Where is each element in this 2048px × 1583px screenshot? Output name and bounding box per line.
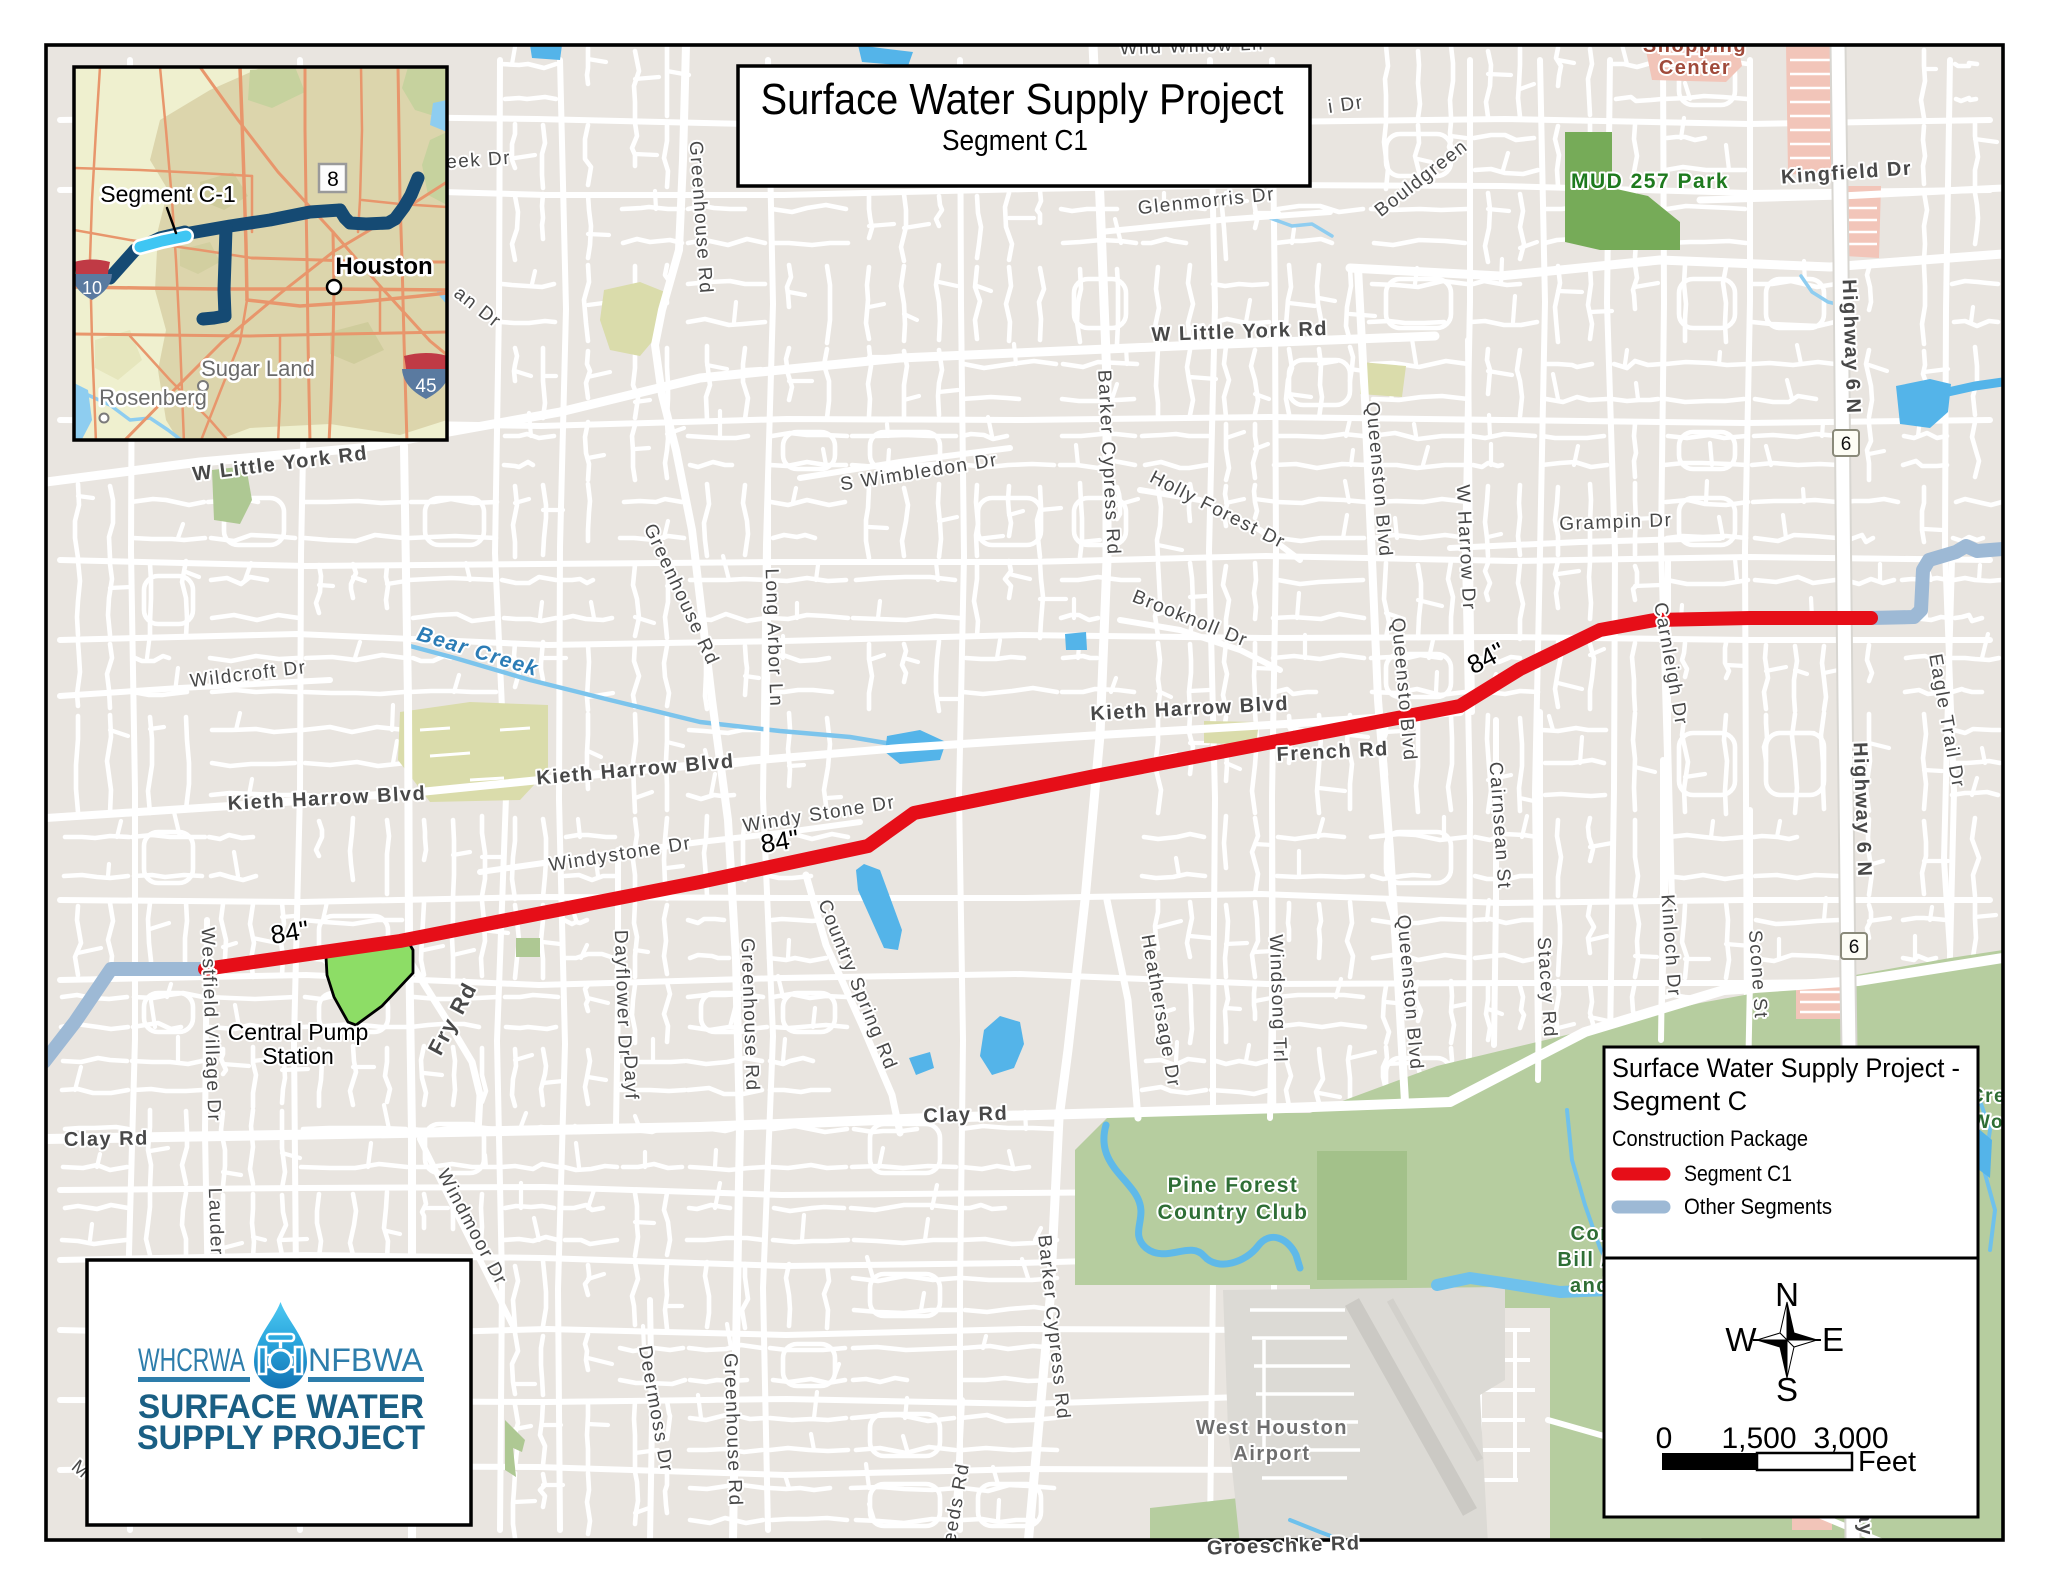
svg-text:Center: Center bbox=[1659, 57, 1731, 79]
svg-text:45: 45 bbox=[415, 376, 436, 397]
svg-text:6: 6 bbox=[1841, 434, 1852, 455]
svg-text:Bill /: Bill / bbox=[1557, 1249, 1608, 1271]
svg-text:Construction Package: Construction Package bbox=[1612, 1126, 1808, 1151]
svg-text:0: 0 bbox=[1656, 1422, 1673, 1455]
svg-text:Feet: Feet bbox=[1858, 1446, 1916, 1478]
svg-text:Houston: Houston bbox=[335, 253, 432, 280]
svg-text:Station: Station bbox=[262, 1043, 334, 1069]
svg-text:Pine Forest: Pine Forest bbox=[1168, 1174, 1299, 1197]
svg-text:84": 84" bbox=[268, 914, 310, 950]
svg-text:Other Segments: Other Segments bbox=[1684, 1194, 1832, 1219]
svg-text:NFBWA: NFBWA bbox=[308, 1342, 424, 1378]
svg-text:Segment C: Segment C bbox=[1612, 1086, 1747, 1116]
svg-text:MUD 257 Park: MUD 257 Park bbox=[1571, 170, 1729, 193]
svg-text:Airport: Airport bbox=[1233, 1443, 1310, 1465]
svg-text:N: N bbox=[1775, 1276, 1799, 1313]
svg-text:8: 8 bbox=[327, 168, 339, 191]
svg-text:E: E bbox=[1822, 1321, 1844, 1358]
svg-text:Rosenberg: Rosenberg bbox=[99, 385, 207, 410]
svg-text:1,500: 1,500 bbox=[1721, 1422, 1796, 1455]
svg-text:10: 10 bbox=[82, 278, 102, 298]
svg-text:West Houston: West Houston bbox=[1196, 1417, 1348, 1439]
svg-text:Sugar Land: Sugar Land bbox=[201, 356, 315, 381]
svg-text:WHCRWA: WHCRWA bbox=[138, 1342, 245, 1378]
svg-text:84": 84" bbox=[758, 823, 800, 859]
svg-text:W: W bbox=[1725, 1321, 1757, 1358]
svg-text:Dayf: Dayf bbox=[619, 1055, 642, 1101]
svg-text:Grampin Dr: Grampin Dr bbox=[1559, 510, 1673, 535]
svg-text:Segment C1: Segment C1 bbox=[1684, 1161, 1792, 1186]
svg-text:Windsong Trl: Windsong Trl bbox=[1265, 934, 1290, 1064]
svg-text:Lauder: Lauder bbox=[204, 1187, 227, 1256]
svg-text:Central Pump: Central Pump bbox=[228, 1019, 369, 1045]
svg-text:Clay Rd: Clay Rd bbox=[923, 1103, 1009, 1128]
svg-text:Surface Water Supply Project: Surface Water Supply Project bbox=[761, 75, 1284, 124]
svg-text:Clay Rd: Clay Rd bbox=[64, 1128, 149, 1151]
svg-text:Dayflower Dr: Dayflower Dr bbox=[610, 930, 635, 1058]
svg-text:Segment C-1: Segment C-1 bbox=[100, 181, 236, 207]
svg-text:Country Club: Country Club bbox=[1158, 1201, 1309, 1224]
svg-text:6: 6 bbox=[1849, 937, 1860, 958]
svg-text:SUPPLY PROJECT: SUPPLY PROJECT bbox=[137, 1419, 425, 1457]
svg-text:Segment C1: Segment C1 bbox=[942, 125, 1088, 157]
svg-text:S: S bbox=[1776, 1371, 1798, 1408]
svg-text:Surface Water Supply Project -: Surface Water Supply Project - bbox=[1612, 1053, 1960, 1083]
